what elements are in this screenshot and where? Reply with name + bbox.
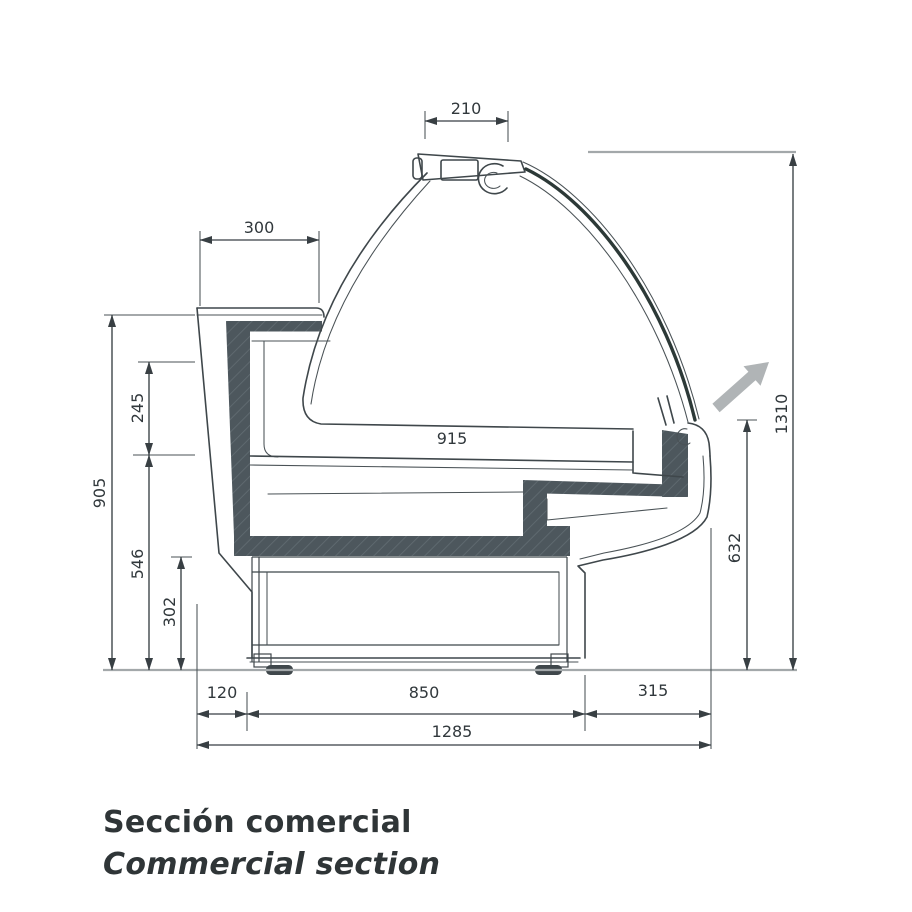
dim-well-height: 546 [128,455,149,670]
glass-end-seal-1 [658,398,666,425]
caption-spanish: Sección comercial [103,805,412,840]
well-liner [268,492,523,494]
display-dome [303,173,683,477]
dim-canopy-width: 210 [425,99,508,142]
ledge-top [197,308,324,317]
deck-surface [250,456,633,462]
floor-step-notch [546,526,570,538]
dim-total-height: 1310 [772,154,793,670]
dim-base-height: 302 [160,557,192,670]
dim-label-base-width: 850 [409,683,440,702]
dim-label-opening-height: 245 [128,393,147,424]
dim-label-back-overhang: 120 [207,683,238,702]
technical-drawing-canvas: 210 300 905 245 546 302 [0,0,912,912]
dim-ledge-depth: 300 [200,218,319,306]
top-rail-insulation [244,321,322,332]
front-step-panel [547,499,667,520]
glass-end-seal-2 [667,396,674,423]
canopy [413,154,525,194]
caption: Sección comercial Commercial section [103,805,440,882]
dim-label-front-height: 632 [725,533,744,564]
dim-label-deck-length: 915 [437,429,468,448]
dim-label-base-height: 302 [160,597,179,628]
dim-label-total-width: 1285 [432,722,473,741]
dim-front-height: 632 [725,420,757,670]
dim-label-front-overhang: 315 [638,681,669,700]
deck-surface-inner [250,465,633,470]
glass-end-bumper [688,423,710,456]
glass-pane [526,169,695,420]
dimension-annotations: 210 300 905 245 546 302 [90,99,793,749]
dim-back-height: 905 [90,315,195,670]
lamp-clip-outer [478,164,507,194]
interior-liner [264,341,278,457]
dim-label-canopy-width: 210 [451,99,482,118]
dome-back-slope-inner [311,181,430,404]
dim-label-back-height: 905 [90,478,109,509]
dim-bottom-chain: 120 850 315 1285 [197,528,711,749]
dim-opening-height: 245 [128,362,195,455]
glass-inner-line [520,176,688,422]
caption-english: Commercial section [103,847,440,882]
dim-label-total-height: 1310 [772,394,791,435]
glass-outer-line [523,162,699,419]
curved-glass-front [520,162,710,456]
left-foot-bracket [254,654,271,667]
dim-label-ledge-depth: 300 [244,218,275,237]
back-counter [197,308,330,658]
commercial-section-diagram: 210 300 905 245 546 302 [0,0,912,912]
back-wall-insulation [226,321,250,536]
airflow-arrow-icon [712,362,769,412]
dim-label-well-height: 546 [128,549,147,580]
canopy-housing [418,154,525,180]
front-nose-insulation [662,430,688,497]
well-floor-insulation [234,536,570,556]
base-pedestal [247,557,580,675]
